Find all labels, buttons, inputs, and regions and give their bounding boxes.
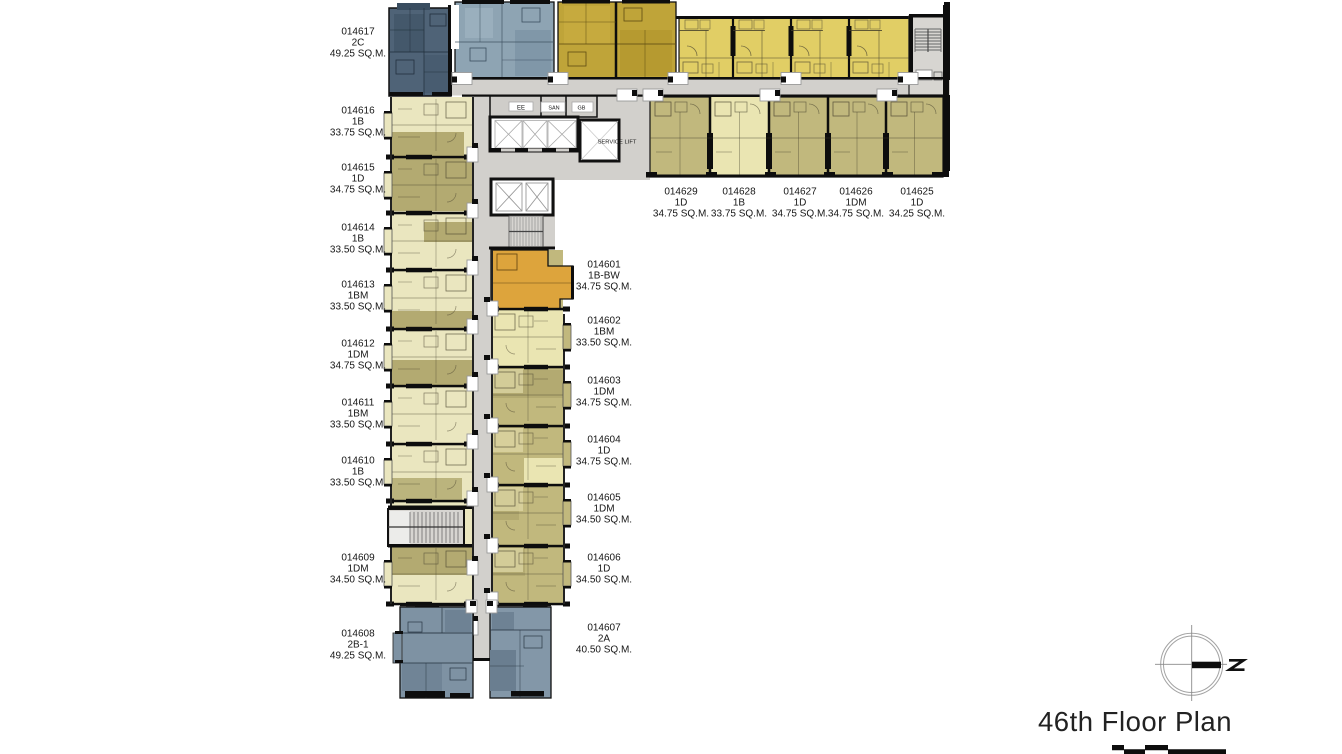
svg-text:014603: 014603 — [587, 376, 621, 387]
svg-text:014611: 014611 — [342, 398, 375, 409]
svg-text:1DM: 1DM — [347, 350, 368, 361]
svg-text:1B: 1B — [352, 467, 365, 478]
svg-text:014610: 014610 — [341, 456, 375, 467]
svg-text:014627: 014627 — [783, 187, 817, 198]
svg-text:1B-BW: 1B-BW — [588, 271, 620, 282]
svg-text:33.50 SQ.M.: 33.50 SQ.M. — [330, 245, 386, 256]
svg-text:014625: 014625 — [900, 187, 934, 198]
svg-text:49.25 SQ.M.: 49.25 SQ.M. — [330, 49, 386, 60]
svg-text:1BM: 1BM — [594, 327, 615, 338]
svg-text:1D: 1D — [598, 564, 611, 575]
svg-text:34.75 SQ.M.: 34.75 SQ.M. — [772, 209, 828, 220]
svg-text:34.25 SQ.M.: 34.25 SQ.M. — [889, 209, 945, 220]
svg-text:014607: 014607 — [587, 623, 621, 634]
svg-text:49.25 SQ.M.: 49.25 SQ.M. — [330, 651, 386, 662]
svg-text:SAN: SAN — [548, 106, 559, 112]
svg-text:33.75 SQ.M.: 33.75 SQ.M. — [711, 209, 767, 220]
svg-text:34.75 SQ.M.: 34.75 SQ.M. — [576, 398, 632, 409]
svg-text:014605: 014605 — [587, 493, 621, 504]
svg-text:014614: 014614 — [341, 223, 375, 234]
svg-text:40.50 SQ.M.: 40.50 SQ.M. — [576, 645, 632, 656]
svg-text:34.75 SQ.M.: 34.75 SQ.M. — [828, 209, 884, 220]
svg-text:1DM: 1DM — [845, 198, 866, 209]
svg-text:1B: 1B — [352, 234, 365, 245]
svg-text:1B: 1B — [733, 198, 746, 209]
svg-text:33.50 SQ.M.: 33.50 SQ.M. — [330, 302, 386, 313]
svg-text:014617: 014617 — [341, 27, 375, 38]
svg-text:33.50 SQ.M.: 33.50 SQ.M. — [330, 420, 386, 431]
svg-text:014606: 014606 — [587, 553, 621, 564]
svg-text:1D: 1D — [911, 198, 924, 209]
svg-text:2B-1: 2B-1 — [347, 640, 369, 651]
svg-text:EE: EE — [517, 106, 525, 112]
svg-text:1B: 1B — [352, 117, 365, 128]
svg-text:014602: 014602 — [587, 316, 621, 327]
svg-text:014616: 014616 — [341, 106, 375, 117]
svg-text:34.50 SQ.M.: 34.50 SQ.M. — [576, 575, 632, 586]
svg-text:2C: 2C — [352, 38, 365, 49]
svg-text:1BM: 1BM — [348, 291, 369, 302]
svg-text:1D: 1D — [675, 198, 688, 209]
svg-text:1D: 1D — [794, 198, 807, 209]
svg-text:33.75 SQ.M.: 33.75 SQ.M. — [330, 128, 386, 139]
svg-text:014615: 014615 — [341, 163, 375, 174]
svg-text:1DM: 1DM — [347, 564, 368, 575]
svg-text:34.75 SQ.M.: 34.75 SQ.M. — [653, 209, 709, 220]
svg-text:1DM: 1DM — [593, 387, 614, 398]
svg-text:014613: 014613 — [341, 280, 375, 291]
svg-text:2A: 2A — [598, 634, 611, 645]
svg-text:014608: 014608 — [341, 629, 375, 640]
svg-text:GB: GB — [578, 106, 586, 112]
svg-text:014629: 014629 — [664, 187, 698, 198]
svg-text:34.75 SQ.M.: 34.75 SQ.M. — [576, 457, 632, 468]
svg-text:014626: 014626 — [839, 187, 873, 198]
svg-text:34.50 SQ.M.: 34.50 SQ.M. — [576, 515, 632, 526]
svg-text:33.50 SQ.M.: 33.50 SQ.M. — [330, 478, 386, 489]
svg-text:014604: 014604 — [587, 435, 621, 446]
svg-text:34.75 SQ.M.: 34.75 SQ.M. — [576, 282, 632, 293]
svg-text:33.50 SQ.M.: 33.50 SQ.M. — [576, 338, 632, 349]
svg-text:1BM: 1BM — [348, 409, 369, 420]
svg-text:34.75 SQ.M.: 34.75 SQ.M. — [330, 185, 386, 196]
svg-text:34.50 SQ.M.: 34.50 SQ.M. — [330, 575, 386, 586]
svg-text:1DM: 1DM — [593, 504, 614, 515]
svg-text:014612: 014612 — [341, 339, 375, 350]
svg-text:34.75 SQ.M.: 34.75 SQ.M. — [330, 361, 386, 372]
svg-text:SERVICE LIFT: SERVICE LIFT — [598, 140, 637, 146]
svg-text:014601: 014601 — [587, 260, 621, 271]
svg-text:1D: 1D — [352, 174, 365, 185]
svg-text:1D: 1D — [598, 446, 611, 457]
svg-text:014628: 014628 — [722, 187, 756, 198]
svg-text:014609: 014609 — [341, 553, 375, 564]
svg-text:46th Floor Plan: 46th Floor Plan — [1038, 706, 1232, 737]
